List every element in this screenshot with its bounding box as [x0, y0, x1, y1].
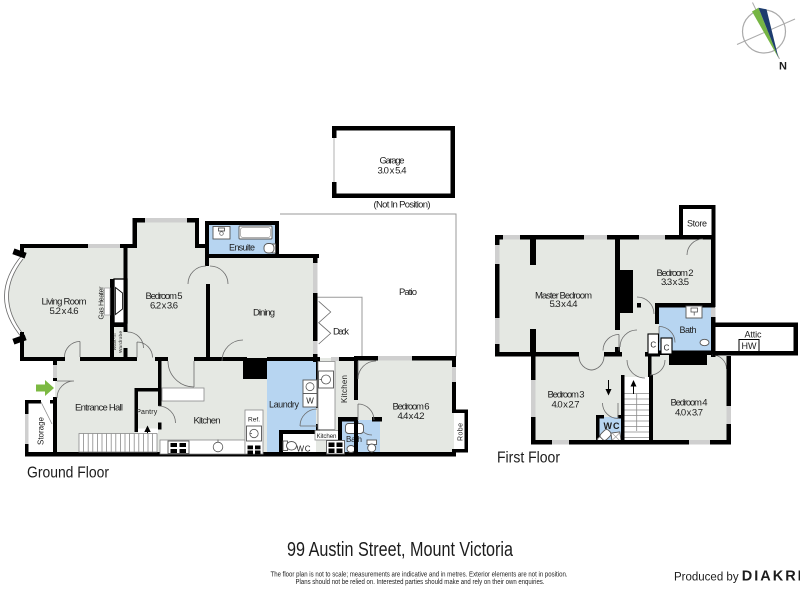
svg-text:C: C: [664, 344, 670, 353]
svg-text:4.4 x 4.2: 4.4 x 4.2: [398, 411, 425, 422]
svg-text:HW: HW: [742, 341, 758, 351]
svg-text:Produced by DIAKRIT: Produced by DIAKRIT: [674, 569, 800, 585]
svg-text:Bath: Bath: [680, 325, 697, 335]
svg-text:Kitchen: Kitchen: [317, 433, 338, 440]
svg-text:4.0 x 3.7: 4.0 x 3.7: [675, 407, 703, 418]
svg-text:Pantry: Pantry: [136, 409, 158, 416]
svg-text:N: N: [779, 61, 787, 73]
svg-text:Storage: Storage: [37, 416, 46, 445]
svg-text:First Floor: First Floor: [497, 450, 560, 467]
svg-text:Kitchen: Kitchen: [340, 375, 349, 403]
svg-text:Kitchen: Kitchen: [194, 416, 221, 427]
svg-text:Robe: Robe: [457, 423, 464, 441]
svg-text:Wardrobe: Wardrobe: [118, 331, 124, 353]
svg-text:3.3 x 3.5: 3.3 x 3.5: [661, 277, 689, 288]
svg-text:WC: WC: [297, 445, 311, 454]
svg-text:Attic: Attic: [745, 330, 763, 340]
svg-text:5.2 x 4.6: 5.2 x 4.6: [50, 306, 79, 317]
svg-text:Walk-in: Walk-in: [112, 333, 118, 350]
svg-text:C: C: [650, 341, 656, 350]
svg-text:4.0 x 2.7: 4.0 x 2.7: [552, 399, 580, 410]
svg-text:Patio: Patio: [399, 287, 417, 298]
svg-text:99 Austin Street, Mount Victor: 99 Austin Street, Mount Victoria: [287, 538, 513, 561]
svg-text:(Not In Position): (Not In Position): [374, 200, 431, 211]
svg-text:Entrance Hall: Entrance Hall: [75, 403, 123, 414]
svg-text:Ref.: Ref.: [248, 417, 260, 424]
svg-text:W: W: [306, 397, 314, 406]
svg-text:Ensuite: Ensuite: [229, 243, 255, 253]
svg-text:Store: Store: [687, 219, 707, 229]
svg-text:The floor plan is not to scale: The floor plan is not to scale; measurem…: [271, 572, 568, 579]
svg-text:5.3 x 4.4: 5.3 x 4.4: [550, 299, 578, 310]
svg-text:Laundry: Laundry: [269, 400, 300, 410]
svg-text:Ground Floor: Ground Floor: [27, 465, 109, 482]
svg-text:Deck: Deck: [333, 327, 349, 338]
svg-text:3.0 x 5.4: 3.0 x 5.4: [378, 166, 407, 177]
svg-text:Plans should not be relied on.: Plans should not be relied on. Intereste…: [296, 579, 545, 586]
svg-text:Dining: Dining: [253, 308, 275, 319]
svg-text:6.2 x 3.6: 6.2 x 3.6: [150, 301, 178, 312]
svg-text:Gas Heater: Gas Heater: [99, 286, 106, 320]
